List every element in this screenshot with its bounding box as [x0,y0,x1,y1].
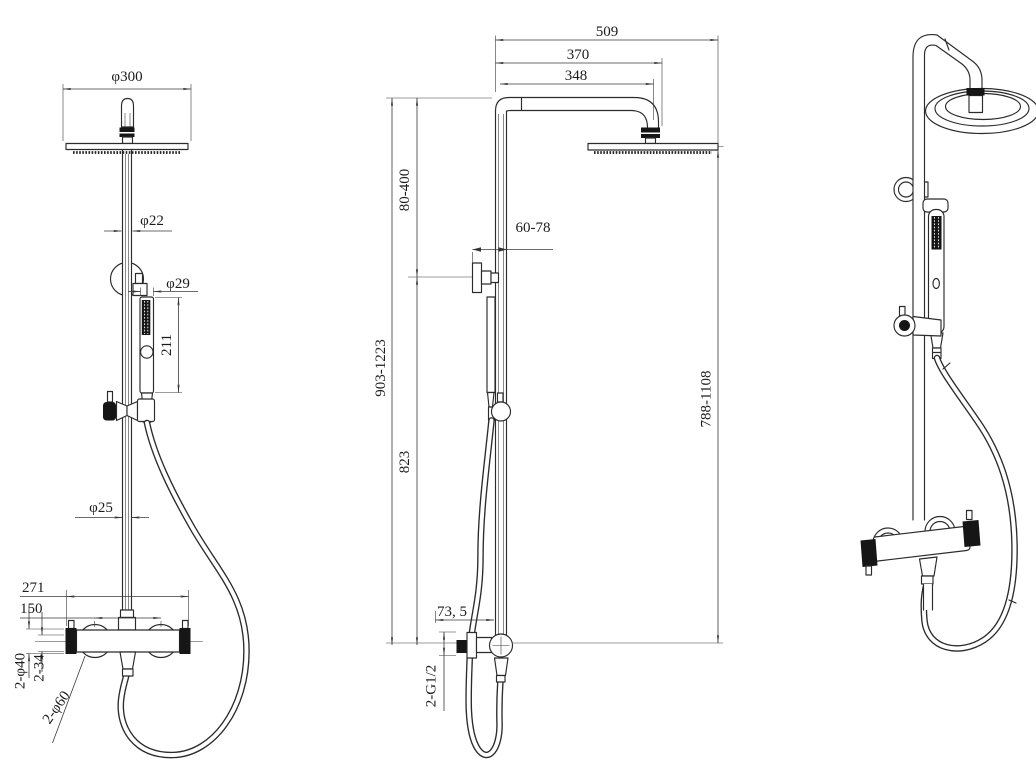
dim-riser-lower-diameter: φ25 [75,500,149,518]
dim-handshower-length: 211 [155,298,182,393]
dim-lower-section-height: 823 [397,277,417,645]
shower-hose-perspective [924,358,1016,648]
rain-head-front [66,99,188,153]
dim-outlet-offset: 73, 5 [436,604,495,623]
dim-label-head-to-outlet-height: 788-1108 [699,371,715,428]
dim-label-inlet-spacing: 150 [20,601,43,617]
dim-label-lower-section-height: 823 [397,451,413,474]
dim-label-arm-reach: 348 [565,68,588,84]
valve-cap-left-perspective [861,539,878,567]
valve-cap-left [66,628,77,654]
technical-drawing-canvas: φ300 φ22 [0,0,1036,772]
dim-label-riser-upper-diameter: φ22 [140,213,164,229]
riser-pipe-side [496,111,507,640]
dim-label-end-caps-width: 2-34 [32,654,48,682]
dim-label-valve-overall-width: 271 [22,580,45,596]
rain-head-disc [66,144,188,150]
wall-bracket-front-arm [133,274,147,296]
dim-arm-outer-reach: 370 [496,47,663,63]
dim-label-outlet-offset: 73, 5 [437,604,467,620]
dim-bracket-wall-clearance: 60-78 [473,220,554,263]
dim-overall-height: 903-1223 [373,98,392,645]
dim-label-upper-pipe-adjust: 80-400 [397,169,413,212]
valve-outlet [120,652,136,669]
hand-shower-grip [932,216,942,250]
dim-label-arm-outer-reach: 370 [567,47,590,63]
thermostatic-valve-perspective [861,511,981,611]
hand-shower-side [487,297,495,421]
dim-inlet-spacing: 150 [20,601,161,627]
dim-label-head-diameter: φ300 [111,69,142,85]
shower-hose-front [121,423,247,755]
dim-label-riser-lower-diameter: φ25 [89,500,113,516]
dim-label-bracket-wall-clearance: 60-78 [516,220,551,236]
dim-overall-depth: 509 [496,24,719,40]
dim-label-handshower-length: 211 [159,334,175,356]
thermostatic-valve-front [35,610,203,676]
dim-label-handshower-head-diameter: φ29 [166,276,190,292]
valve-wall-inlet [457,640,468,653]
rain-head-perspective [926,88,1036,134]
dim-valve-overall-width: 271 [20,580,189,626]
valve-cap-right [180,628,191,654]
rain-head-side [588,144,718,153]
dim-arm-reach: 348 [500,68,654,84]
valve-body [77,630,180,652]
dim-label-overall-depth: 509 [596,24,619,40]
slider-knob [103,402,116,421]
dim-head-to-outlet-height: 788-1108 [699,150,719,643]
side-view: 509 370 348 903-1223 80-400 823 [373,24,724,755]
dim-upper-pipe-adjust: 80-400 [397,98,417,277]
dim-inlet-threads: 2-G1/2 [424,632,457,711]
shower-system-drawing: φ300 φ22 [0,0,1036,772]
shower-arm-side [496,98,661,144]
dim-label-overall-height: 903-1223 [373,339,389,397]
wall-bracket-side [473,263,499,293]
dim-label-escutcheons-diameter: 2-φ60 [40,688,74,727]
hand-shower-spray-face [142,300,151,335]
hand-shower-button [141,346,153,358]
dim-riser-upper-diameter: φ22 [104,213,172,231]
front-view: φ300 φ22 [13,69,247,755]
riser-pipe-front [123,150,132,613]
valve-outlet-side [495,658,509,676]
perspective-view [861,35,1036,649]
dim-label-end-caps-diameter: 2-φ40 [13,653,29,689]
thermostatic-valve-side [457,633,513,683]
valve-cap-right-perspective [963,520,981,547]
dim-end-caps-width: 2-34 [32,612,65,682]
dim-label-inlet-threads: 2-G1/2 [424,665,440,708]
slider-holder-side [492,393,511,421]
